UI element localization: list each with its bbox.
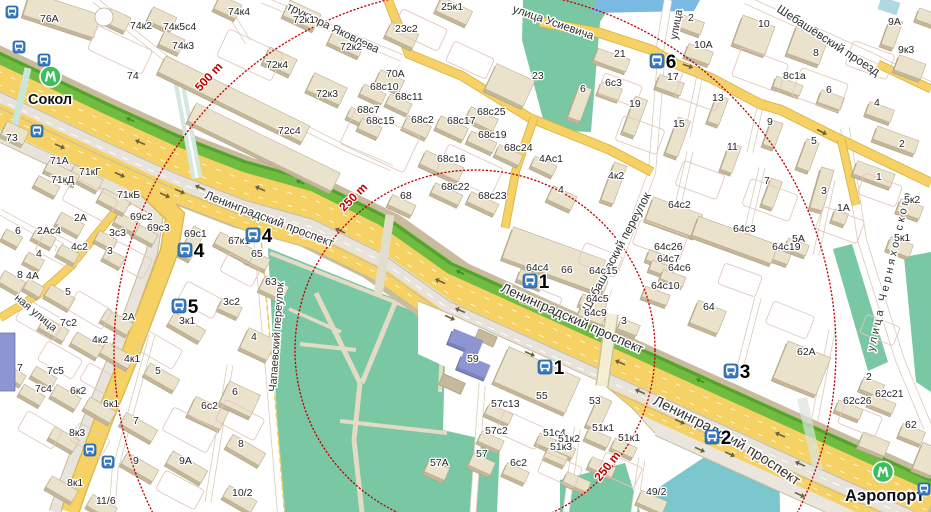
svg-text:76А: 76А — [40, 13, 59, 25]
svg-text:70А: 70А — [386, 68, 405, 80]
svg-text:21: 21 — [614, 48, 626, 60]
svg-text:8: 8 — [17, 269, 23, 281]
svg-text:6с3: 6с3 — [605, 77, 622, 89]
svg-text:4с2: 4с2 — [71, 241, 88, 253]
svg-text:49/2: 49/2 — [646, 486, 667, 498]
svg-text:8: 8 — [238, 438, 244, 450]
svg-text:64с19: 64с19 — [772, 241, 801, 253]
svg-text:1А: 1А — [837, 202, 850, 214]
svg-text:64с10: 64с10 — [651, 280, 680, 292]
svg-text:8: 8 — [813, 47, 819, 59]
svg-text:7: 7 — [17, 362, 23, 374]
svg-text:64с5: 64с5 — [586, 293, 609, 305]
svg-text:4к1: 4к1 — [124, 353, 140, 365]
svg-text:55: 55 — [536, 390, 548, 402]
svg-text:3: 3 — [621, 315, 627, 327]
svg-text:6: 6 — [666, 52, 677, 73]
svg-text:7с2: 7с2 — [60, 317, 77, 329]
svg-text:2А: 2А — [74, 212, 87, 224]
svg-text:68с24: 68с24 — [504, 142, 533, 154]
svg-text:51к3: 51к3 — [550, 441, 572, 453]
svg-text:1: 1 — [554, 358, 565, 379]
svg-text:4: 4 — [262, 226, 273, 247]
svg-text:5: 5 — [65, 286, 71, 298]
svg-text:9: 9 — [133, 455, 139, 467]
svg-text:68с16: 68с16 — [437, 153, 466, 165]
svg-text:2: 2 — [899, 138, 905, 150]
svg-text:68с11: 68с11 — [395, 91, 423, 103]
svg-text:6: 6 — [826, 84, 832, 96]
svg-text:2Ас4: 2Ас4 — [37, 225, 61, 237]
svg-text:10А: 10А — [694, 39, 713, 51]
svg-text:11/6: 11/6 — [96, 495, 116, 507]
svg-text:74: 74 — [127, 70, 139, 82]
svg-text:3: 3 — [740, 362, 751, 383]
svg-text:68с17: 68с17 — [447, 115, 476, 127]
svg-text:2: 2 — [721, 428, 732, 449]
svg-text:68с15: 68с15 — [366, 115, 395, 127]
svg-text:Сокол: Сокол — [28, 92, 72, 108]
svg-text:23с2: 23с2 — [395, 23, 418, 35]
svg-text:2А: 2А — [122, 311, 135, 323]
svg-text:64с6: 64с6 — [668, 262, 691, 274]
svg-text:62с21: 62с21 — [875, 388, 904, 400]
svg-text:72к4: 72к4 — [266, 59, 288, 71]
svg-text:5: 5 — [155, 365, 161, 377]
svg-text:4: 4 — [251, 331, 257, 343]
svg-text:72к2: 72к2 — [340, 41, 362, 53]
svg-text:57: 57 — [476, 448, 488, 460]
svg-text:64с9: 64с9 — [584, 307, 607, 319]
svg-text:9к3: 9к3 — [898, 44, 914, 56]
svg-text:19: 19 — [629, 98, 641, 110]
svg-text:8с1a: 8с1a — [783, 70, 806, 82]
svg-text:7с4: 7с4 — [35, 383, 52, 395]
svg-text:13: 13 — [712, 92, 724, 104]
svg-text:68с19: 68с19 — [478, 129, 507, 141]
svg-text:51к1: 51к1 — [592, 422, 614, 434]
svg-text:74к5с4: 74к5с4 — [163, 21, 196, 33]
svg-text:7: 7 — [133, 415, 139, 427]
svg-text:71кД: 71кД — [51, 174, 74, 186]
svg-text:3с2: 3с2 — [223, 296, 240, 308]
svg-text:68с22: 68с22 — [441, 181, 470, 193]
svg-text:4: 4 — [36, 248, 42, 260]
svg-text:3: 3 — [107, 245, 113, 257]
svg-text:72к1: 72к1 — [293, 14, 315, 26]
svg-text:68: 68 — [400, 190, 412, 202]
svg-text:1: 1 — [539, 272, 550, 293]
svg-text:65: 65 — [251, 248, 263, 260]
svg-text:6: 6 — [15, 225, 21, 237]
svg-text:71кГ: 71кГ — [79, 166, 101, 178]
svg-text:57с13: 57с13 — [491, 398, 520, 410]
svg-text:1: 1 — [876, 171, 882, 183]
svg-text:4А: 4А — [26, 270, 39, 282]
svg-text:7: 7 — [764, 175, 770, 187]
svg-text:10/2: 10/2 — [232, 487, 253, 499]
svg-text:6: 6 — [232, 386, 238, 398]
svg-text:9А: 9А — [888, 16, 901, 28]
svg-text:64с3: 64с3 — [733, 223, 756, 235]
svg-text:74к3: 74к3 — [172, 40, 194, 52]
svg-text:4к2: 4к2 — [92, 334, 108, 346]
svg-text:4: 4 — [194, 241, 205, 262]
svg-text:5к2: 5к2 — [904, 194, 920, 206]
svg-text:9: 9 — [767, 116, 773, 128]
svg-text:3с3: 3с3 — [109, 227, 126, 239]
svg-text:6с2: 6с2 — [510, 457, 527, 469]
svg-text:2: 2 — [866, 371, 872, 383]
svg-text:4к2: 4к2 — [608, 170, 624, 182]
svg-text:53: 53 — [589, 395, 601, 407]
svg-text:72к3: 72к3 — [316, 88, 338, 100]
svg-text:25к1: 25к1 — [441, 1, 463, 13]
svg-text:64: 64 — [703, 301, 715, 313]
svg-text:57с2: 57с2 — [485, 425, 508, 437]
svg-text:59: 59 — [467, 353, 479, 365]
svg-text:23: 23 — [532, 70, 544, 82]
svg-text:6к2: 6к2 — [70, 385, 86, 397]
svg-text:68с23: 68с23 — [478, 190, 507, 202]
svg-text:72с4: 72с4 — [278, 125, 301, 137]
svg-text:71А: 71А — [50, 155, 69, 167]
svg-text:69с3: 69с3 — [147, 222, 170, 234]
svg-text:4: 4 — [558, 184, 564, 196]
svg-text:8к3: 8к3 — [69, 427, 85, 439]
svg-text:62с26: 62с26 — [843, 395, 872, 407]
svg-text:11: 11 — [727, 141, 738, 153]
svg-text:51к1: 51к1 — [618, 432, 640, 444]
svg-text:62А: 62А — [797, 346, 816, 358]
svg-text:64с2: 64с2 — [668, 199, 691, 211]
svg-text:64с15: 64с15 — [589, 265, 618, 277]
svg-text:4Ас1: 4Ас1 — [539, 153, 563, 165]
svg-text:68с2: 68с2 — [411, 114, 434, 126]
svg-text:8к1: 8к1 — [67, 477, 83, 489]
svg-text:69с2: 69с2 — [130, 211, 153, 223]
svg-text:66: 66 — [561, 264, 573, 276]
svg-text:4: 4 — [874, 97, 880, 109]
svg-text:64с26: 64с26 — [654, 241, 683, 253]
svg-text:71кБ: 71кБ — [117, 189, 140, 201]
svg-text:68с25: 68с25 — [477, 106, 506, 118]
svg-text:2: 2 — [688, 12, 694, 24]
svg-text:3: 3 — [821, 185, 827, 197]
svg-text:74к2: 74к2 — [130, 20, 152, 32]
svg-text:10: 10 — [758, 18, 770, 30]
svg-text:5к1: 5к1 — [894, 232, 910, 244]
svg-text:74к4: 74к4 — [228, 6, 250, 18]
svg-text:69с1: 69с1 — [184, 228, 207, 240]
svg-text:62: 62 — [905, 419, 917, 431]
svg-text:63: 63 — [265, 276, 277, 288]
svg-text:57А: 57А — [430, 457, 449, 469]
svg-text:5: 5 — [188, 297, 199, 318]
svg-text:6: 6 — [580, 83, 586, 95]
svg-text:6с2: 6с2 — [201, 400, 218, 412]
svg-text:5: 5 — [811, 135, 817, 147]
svg-text:6к1: 6к1 — [103, 398, 119, 410]
svg-text:9А: 9А — [179, 455, 192, 467]
svg-text:7с5: 7с5 — [47, 365, 64, 377]
svg-text:15: 15 — [673, 118, 685, 130]
svg-text:73: 73 — [6, 132, 18, 144]
svg-text:Аэропорт: Аэропорт — [845, 487, 924, 505]
